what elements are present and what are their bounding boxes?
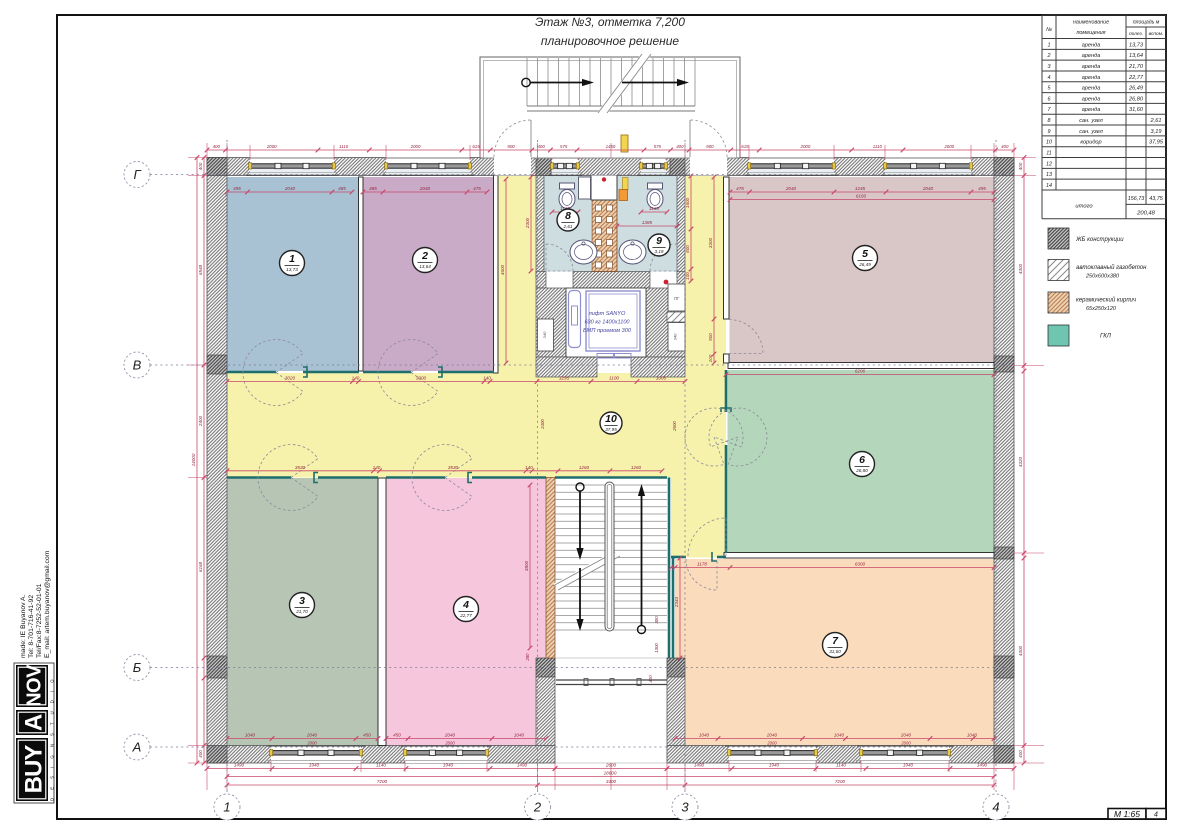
svg-text:1040: 1040	[967, 733, 978, 738]
svg-text:485: 485	[369, 186, 377, 191]
svg-text:400: 400	[1018, 750, 1023, 758]
svg-text:1260: 1260	[579, 465, 590, 470]
svg-text:4: 4	[1048, 75, 1051, 81]
svg-text:7200: 7200	[835, 779, 846, 784]
svg-text:11: 11	[1046, 151, 1052, 157]
svg-text:156,73: 156,73	[1128, 196, 1145, 202]
svg-text:2040: 2040	[900, 733, 912, 738]
svg-text:1600: 1600	[685, 197, 690, 208]
svg-text:1260: 1260	[631, 465, 642, 470]
svg-text:615: 615	[472, 144, 480, 149]
svg-text:26,49: 26,49	[1128, 86, 1143, 92]
svg-text:полез.: полез.	[1129, 32, 1143, 37]
svg-text:300: 300	[654, 616, 659, 624]
svg-text:140: 140	[352, 376, 360, 381]
svg-text:140: 140	[373, 465, 381, 470]
svg-text:1385: 1385	[642, 220, 653, 225]
svg-text:аренда: аренда	[1082, 96, 1101, 102]
svg-text:13,64: 13,64	[419, 264, 431, 269]
svg-text:100: 100	[685, 272, 690, 280]
svg-text:керамический кирпич: керамический кирпич	[1076, 297, 1136, 304]
svg-text:4: 4	[992, 800, 999, 815]
svg-text:1490: 1490	[517, 763, 528, 768]
svg-text:4320: 4320	[1018, 456, 1023, 467]
svg-text:630 кг 1400х1100: 630 кг 1400х1100	[584, 320, 630, 326]
svg-text:21,70: 21,70	[1128, 64, 1144, 70]
svg-text:1140: 1140	[836, 763, 846, 768]
svg-text:575: 575	[560, 144, 568, 149]
svg-text:E_mail: artem.buyanov@gmail.co: E_mail: artem.buyanov@gmail.com	[44, 550, 51, 658]
svg-text:450: 450	[393, 733, 401, 738]
svg-text:2000: 2000	[410, 144, 421, 149]
svg-text:1450: 1450	[606, 144, 616, 149]
svg-text:6548: 6548	[198, 264, 203, 275]
svg-text:2: 2	[533, 800, 542, 815]
svg-text:3800: 3800	[524, 560, 529, 571]
svg-text:3,19: 3,19	[1151, 129, 1162, 135]
svg-text:2040: 2040	[444, 733, 456, 738]
svg-text:3: 3	[299, 595, 305, 607]
svg-text:21,70: 21,70	[295, 609, 308, 614]
svg-text:400: 400	[198, 162, 203, 170]
svg-text:26,80: 26,80	[855, 468, 868, 473]
svg-text:140: 140	[483, 376, 491, 381]
svg-text:37,95: 37,95	[605, 427, 617, 432]
svg-text:3300: 3300	[708, 237, 713, 248]
svg-text:3: 3	[681, 800, 689, 815]
svg-text:2000: 2000	[943, 144, 954, 149]
svg-text:1490: 1490	[234, 763, 245, 768]
svg-text:475: 475	[736, 186, 744, 191]
svg-text:1300: 1300	[654, 643, 659, 653]
svg-text:1940: 1940	[309, 763, 320, 768]
svg-text:3,19: 3,19	[655, 249, 664, 254]
svg-text:В: В	[133, 358, 142, 373]
svg-text:250х600х380: 250х600х380	[1085, 274, 1120, 280]
svg-text:13,73: 13,73	[1129, 42, 1144, 48]
svg-text:лифт SANYO: лифт SANYO	[588, 311, 626, 317]
svg-text:BUY: BUY	[21, 745, 48, 794]
svg-text:22,77: 22,77	[459, 613, 472, 618]
svg-text:485: 485	[338, 186, 346, 191]
svg-text:65х250х120: 65х250х120	[1086, 306, 1117, 312]
svg-text:6168: 6168	[198, 561, 203, 572]
svg-text:575: 575	[654, 144, 662, 149]
svg-text:1245: 1245	[855, 186, 866, 191]
svg-text:2000: 2000	[900, 741, 911, 746]
svg-text:6: 6	[1048, 96, 1051, 102]
svg-text:8: 8	[1048, 118, 1051, 124]
svg-text:900: 900	[708, 333, 713, 341]
svg-text:1040: 1040	[699, 733, 710, 738]
svg-text:1940: 1940	[443, 763, 454, 768]
svg-text:1110: 1110	[339, 144, 349, 149]
svg-text:4600: 4600	[500, 264, 505, 275]
svg-text:1100: 1100	[609, 376, 619, 381]
svg-text:14000: 14000	[191, 453, 196, 466]
svg-text:2040: 2040	[766, 733, 778, 738]
svg-text:помещения: помещения	[1076, 30, 1105, 36]
svg-text:400: 400	[648, 675, 653, 683]
svg-text:2040: 2040	[306, 733, 318, 738]
svg-text:аренда: аренда	[1082, 86, 1101, 92]
svg-text:8: 8	[565, 210, 571, 222]
svg-text:аренда: аренда	[1082, 53, 1101, 59]
svg-text:26,80: 26,80	[1128, 96, 1144, 102]
svg-text:ПГ: ПГ	[674, 296, 680, 301]
svg-text:М 1:65: М 1:65	[1114, 809, 1140, 819]
svg-text:2400: 2400	[540, 419, 545, 430]
svg-text:4300: 4300	[1018, 263, 1023, 274]
svg-text:5: 5	[862, 248, 868, 260]
svg-text:1940: 1940	[769, 763, 780, 768]
svg-text:495: 495	[233, 186, 241, 191]
svg-text:9: 9	[1048, 129, 1051, 135]
svg-text:аренда: аренда	[1082, 42, 1101, 48]
svg-text:1178: 1178	[697, 562, 707, 567]
svg-text:100: 100	[708, 354, 713, 362]
svg-text:31,60: 31,60	[829, 649, 841, 654]
svg-text:2000: 2000	[766, 741, 777, 746]
svg-text:280: 280	[525, 653, 530, 662]
svg-text:1: 1	[223, 800, 230, 815]
svg-text:наименование: наименование	[1073, 20, 1109, 26]
svg-text:1110: 1110	[873, 144, 883, 149]
svg-text:3020: 3020	[285, 376, 296, 381]
svg-text:итого: итого	[1075, 203, 1093, 209]
svg-text:22,77: 22,77	[1128, 75, 1144, 81]
svg-text:Tel: 8-701-716-41-92: Tel: 8-701-716-41-92	[28, 595, 35, 658]
svg-text:2040: 2040	[922, 186, 934, 191]
svg-text:340: 340	[542, 331, 547, 338]
svg-text:4: 4	[462, 599, 469, 611]
svg-text:2,61: 2,61	[1150, 118, 1162, 124]
svg-text:6206: 6206	[855, 369, 866, 374]
svg-text:3000: 3000	[416, 376, 427, 381]
svg-text:1490: 1490	[694, 763, 705, 768]
svg-text:1040: 1040	[834, 733, 845, 738]
svg-text:1140: 1140	[376, 763, 386, 768]
svg-text:400: 400	[1018, 162, 1023, 170]
svg-text:аренда: аренда	[1082, 64, 1101, 70]
svg-text:10: 10	[605, 413, 617, 425]
svg-text:1040: 1040	[514, 733, 525, 738]
svg-text:615: 615	[741, 144, 749, 149]
svg-text:340: 340	[673, 333, 678, 340]
svg-text:made: IE Buyanov A.: made: IE Buyanov A.	[20, 594, 27, 658]
svg-text:31,60: 31,60	[1129, 107, 1144, 113]
svg-text:400: 400	[213, 144, 221, 149]
svg-text:6160: 6160	[856, 194, 867, 199]
svg-text:1005: 1005	[656, 376, 667, 381]
svg-text:13,73: 13,73	[286, 267, 298, 272]
svg-text:14: 14	[1046, 183, 1052, 189]
svg-text:D E S I G N S T U D I O: D E S I G N S T U D I O	[50, 676, 55, 801]
svg-text:Г: Г	[133, 167, 141, 182]
svg-text:2600: 2600	[672, 421, 677, 432]
svg-text:2,61: 2,61	[563, 224, 573, 229]
svg-text:2600: 2600	[605, 763, 617, 768]
svg-text:400: 400	[676, 144, 684, 149]
svg-text:900: 900	[507, 144, 515, 149]
svg-text:2: 2	[1047, 53, 1051, 59]
svg-text:аренда: аренда	[1082, 107, 1101, 113]
svg-text:400: 400	[537, 144, 545, 149]
svg-text:495: 495	[978, 186, 986, 191]
svg-text:№: №	[1046, 27, 1052, 33]
svg-text:А: А	[132, 740, 142, 755]
svg-text:NOV: NOV	[24, 664, 46, 707]
svg-text:6300: 6300	[855, 562, 866, 567]
svg-text:43,75: 43,75	[1149, 196, 1163, 202]
svg-text:7200: 7200	[377, 779, 388, 784]
svg-text:26,49: 26,49	[858, 262, 871, 267]
svg-text:Этаж №3, отметка 7,200: Этаж №3, отметка 7,200	[535, 15, 685, 29]
svg-text:2000: 2000	[444, 741, 455, 746]
svg-text:450: 450	[363, 733, 371, 738]
svg-text:2300: 2300	[525, 217, 530, 229]
svg-text:2343: 2343	[674, 596, 679, 608]
svg-text:сан. узел: сан. узел	[1079, 129, 1103, 135]
svg-text:2000: 2000	[306, 741, 317, 746]
svg-text:аренда: аренда	[1082, 75, 1101, 81]
svg-text:1040: 1040	[245, 733, 256, 738]
svg-text:2040: 2040	[419, 186, 431, 191]
svg-text:ЖБ конструкции: ЖБ конструкции	[1075, 237, 1124, 243]
svg-text:13,64: 13,64	[1129, 53, 1143, 59]
svg-text:2040: 2040	[785, 186, 797, 191]
svg-text:140: 140	[525, 465, 533, 470]
svg-text:400: 400	[1001, 144, 1009, 149]
svg-text:4: 4	[1154, 812, 1158, 819]
svg-text:1: 1	[289, 253, 295, 265]
svg-text:200,48: 200,48	[1136, 210, 1156, 216]
svg-text:2040: 2040	[284, 186, 296, 191]
svg-text:БМП проемом 300: БМП проемом 300	[583, 328, 632, 334]
svg-text:3530: 3530	[295, 465, 306, 470]
svg-text:400: 400	[198, 750, 203, 758]
svg-text:475: 475	[473, 186, 481, 191]
svg-text:12: 12	[1046, 161, 1052, 167]
svg-text:автоклавный газобетон: автоклавный газобетон	[1076, 264, 1147, 271]
svg-text:Б: Б	[133, 660, 142, 675]
svg-text:800: 800	[685, 245, 690, 253]
svg-text:4300: 4300	[1018, 645, 1023, 656]
svg-text:Tel/Fax:8-7252-52-01-01: Tel/Fax:8-7252-52-01-01	[36, 583, 43, 658]
svg-text:2: 2	[421, 250, 428, 262]
svg-text:площадь м: площадь м	[1133, 20, 1160, 26]
svg-text:3400: 3400	[606, 779, 617, 784]
svg-text:3530: 3530	[448, 465, 459, 470]
svg-text:сан. узел: сан. узел	[1079, 118, 1103, 124]
svg-text:37,95: 37,95	[1149, 140, 1164, 146]
svg-text:6: 6	[859, 454, 865, 466]
svg-text:1: 1	[1048, 42, 1051, 48]
svg-text:ГКЛ: ГКЛ	[1100, 334, 1112, 340]
svg-text:900: 900	[706, 144, 714, 149]
svg-text:2000: 2000	[800, 144, 811, 149]
svg-text:10: 10	[1046, 140, 1052, 146]
svg-text:1135: 1135	[649, 206, 659, 211]
svg-text:13: 13	[1046, 172, 1052, 178]
svg-text:2000: 2000	[266, 144, 277, 149]
svg-text:планировочное решение: планировочное решение	[541, 34, 680, 48]
svg-text:A: A	[21, 714, 48, 731]
svg-text:1940: 1940	[903, 763, 914, 768]
svg-text:18600: 18600	[604, 771, 617, 776]
svg-text:9: 9	[656, 235, 662, 247]
svg-text:3: 3	[1048, 64, 1051, 70]
svg-text:вспом.: вспом.	[1149, 32, 1164, 37]
svg-text:коридор: коридор	[1080, 140, 1101, 146]
svg-text:1490: 1490	[977, 763, 988, 768]
svg-text:2400: 2400	[198, 415, 203, 427]
svg-text:1295: 1295	[559, 376, 570, 381]
